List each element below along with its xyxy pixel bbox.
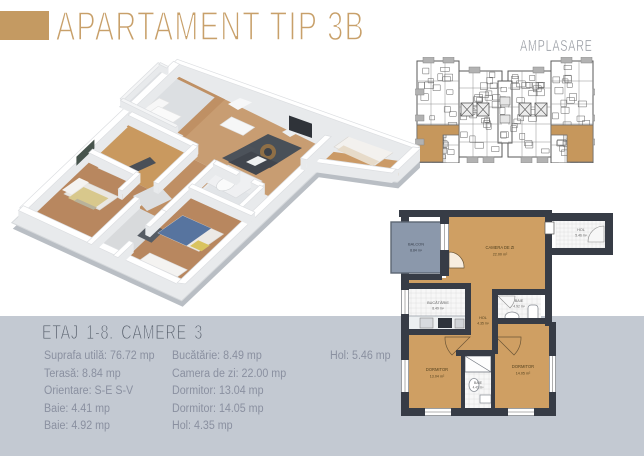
svg-text:8.84 m²: 8.84 m²	[410, 249, 423, 253]
svg-text:4.35 m²: 4.35 m²	[477, 322, 489, 326]
svg-text:BUCĂTĂRIE: BUCĂTĂRIE	[427, 301, 449, 305]
svg-text:8.49 m²: 8.49 m²	[432, 307, 444, 311]
svg-text:AMPLASARE: AMPLASARE	[520, 37, 593, 55]
svg-text:ETAJ 1-8. CAMERE 3: ETAJ 1-8. CAMERE 3	[42, 320, 203, 343]
svg-text:22.00 m²: 22.00 m²	[493, 253, 508, 257]
svg-text:HOL: HOL	[479, 316, 487, 320]
svg-text:4.41 m²: 4.41 m²	[473, 386, 484, 390]
svg-text:BAIE: BAIE	[474, 381, 483, 385]
svg-text:14.05 m²: 14.05 m²	[516, 372, 531, 376]
svg-text:13.04 m²: 13.04 m²	[430, 375, 445, 379]
svg-text:4.92 m²: 4.92 m²	[513, 305, 525, 309]
svg-text:BAIE: BAIE	[515, 299, 524, 303]
svg-text:DORMITOR: DORMITOR	[512, 364, 534, 369]
svg-text:HOL: HOL	[577, 228, 585, 232]
svg-text:BALCON: BALCON	[408, 242, 424, 247]
svg-text:5.46 m²: 5.46 m²	[575, 234, 587, 238]
svg-text:DORMITOR: DORMITOR	[426, 367, 448, 372]
svg-text:CAMERA DE ZI: CAMERA DE ZI	[486, 245, 515, 250]
